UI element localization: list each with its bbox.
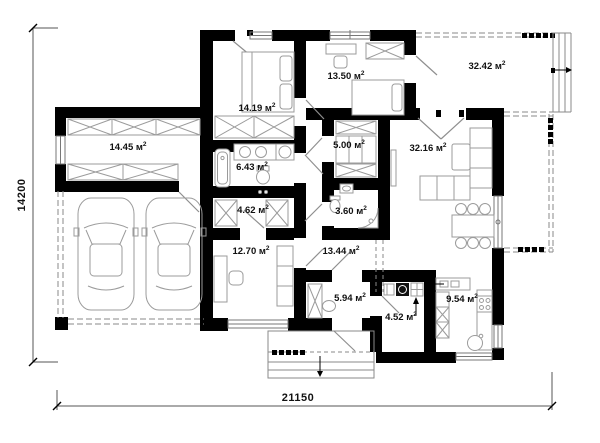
sofa-icon — [277, 246, 293, 306]
tv-icon — [391, 150, 396, 186]
door-icon — [306, 249, 323, 266]
room-label-laundry: 4.52 м2 — [385, 311, 417, 323]
bed-icon — [352, 80, 404, 115]
room-label-office: 12.70 м2 — [232, 245, 269, 257]
room-label-living-room: 32.16 м2 — [409, 142, 446, 154]
coffee-table-icon — [452, 144, 470, 170]
wardrobe-icon — [308, 284, 322, 318]
door-icon — [416, 56, 437, 75]
vanity-sink-icon — [234, 144, 294, 160]
car-icon — [74, 198, 138, 310]
door-icon — [306, 156, 323, 174]
terrace-sliding-door-icon — [494, 196, 502, 248]
double-door-icon — [441, 118, 464, 139]
room-label-kitchen: 9.54 м2 — [446, 293, 478, 305]
room-label-closet: 4.62 м2 — [237, 204, 269, 216]
room-label-bathroom: 6.43 м2 — [236, 161, 268, 173]
floor-plan-page: 14.45 м2 14.19 м2 13.50 м2 32.42 м2 5.00… — [0, 0, 600, 443]
room-label-wardrobe: 5.00 м2 — [333, 139, 365, 151]
room-label-bedroom-2: 13.50 м2 — [327, 70, 364, 82]
sink-icon — [468, 334, 483, 350]
room-label-wc: 3.60 м2 — [335, 205, 367, 217]
sink-icon — [340, 184, 353, 193]
dining-table-icon — [452, 204, 494, 249]
window-icon — [56, 136, 65, 164]
car-icon — [142, 198, 206, 310]
stove-icon — [477, 296, 492, 312]
door-icon — [305, 204, 322, 221]
entry-door-icon — [334, 331, 355, 351]
door-icon — [305, 138, 322, 156]
wardrobe-icon — [215, 116, 294, 138]
garage-door-icon — [179, 192, 199, 212]
kitchen-counter-icon — [436, 278, 492, 350]
window-icon — [228, 320, 288, 328]
window-icon — [494, 325, 502, 348]
window-icon — [456, 353, 492, 360]
dimension-label-vertical: 14200 — [16, 178, 28, 211]
desk-icon — [214, 256, 243, 302]
stairs-icon — [551, 33, 572, 112]
bathtub-icon — [215, 149, 230, 187]
double-door-icon — [418, 118, 441, 139]
room-label-entry: 5.94 м2 — [334, 292, 366, 304]
door-icon — [382, 296, 399, 313]
wardrobe-icon — [366, 43, 404, 59]
room-label-bedroom-1: 14.19 м2 — [238, 102, 275, 114]
room-label-storage: 14.45 м2 — [109, 141, 146, 153]
washer-icon — [384, 283, 409, 296]
window-icon — [250, 32, 272, 39]
room-label-terrace: 32.42 м2 — [468, 60, 505, 72]
dryer-icon — [411, 283, 423, 296]
window-icon — [330, 30, 370, 39]
dimension-label-horizontal: 21150 — [282, 392, 314, 404]
room-label-hallway: 13.44 м2 — [322, 245, 359, 257]
vertical-dimension — [29, 24, 58, 366]
floor-plan-drawing: 14.45 м2 14.19 м2 13.50 м2 32.42 м2 5.00… — [0, 0, 600, 443]
desk-icon — [326, 44, 356, 68]
